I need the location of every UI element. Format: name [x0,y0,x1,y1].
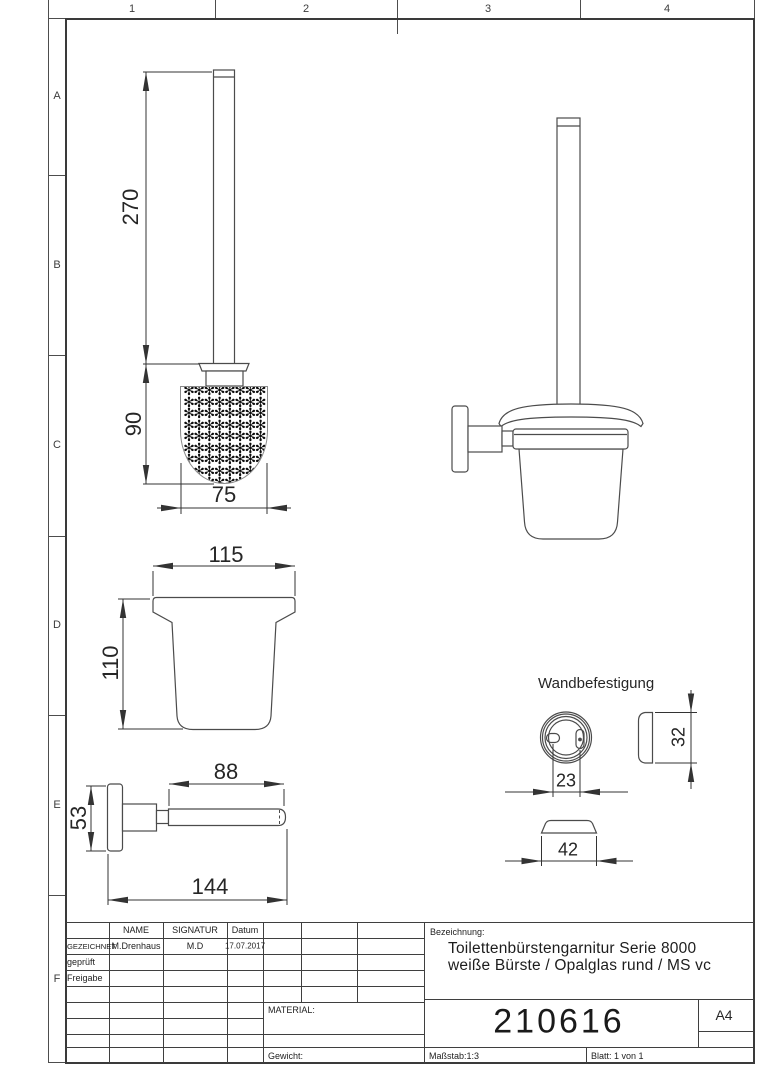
tb-header-signatur: SIGNATUR [172,925,218,935]
tb-gewicht-label: Gewicht: [268,1051,303,1061]
grid-row-a: A [53,90,60,102]
tb-row-geprueft-label: geprüft [67,957,95,967]
assembly-glass-cup [519,449,623,539]
brush-neck [206,371,243,386]
grid-col-1: 1 [129,3,135,15]
grid-col-2: 2 [303,3,309,15]
view-assembly-side [452,118,643,539]
dim-glass-height: 110 [98,645,124,680]
drawing-linework [0,0,764,1080]
grid-row-b: B [53,259,60,271]
holder-wall-plate [108,784,123,851]
tb-gezeichnet-signatur: M.D [187,941,204,951]
tb-gezeichnet-datum: 17.07.2017 [225,942,265,951]
dim-plate-height-side: 53 [66,806,92,830]
grid-col-4: 4 [664,3,670,15]
tb-bezeichnung-label: Bezeichnung: [430,927,485,937]
assembly-arm [468,426,502,452]
view-glass-front [153,598,295,730]
assembly-ring [513,429,628,449]
glass-cup-outline [153,598,295,730]
assembly-wall-plate [452,406,468,472]
arrows-wall-mount [522,694,695,865]
grid-row-f: F [54,973,61,985]
grid-row-d: D [53,619,61,631]
grid-row-c: C [53,439,61,451]
wall-mount-title: Wandbefestigung [538,675,654,692]
frame-grid [49,0,756,1063]
dim-mount-height: 32 [669,727,690,747]
tb-material-label: MATERIAL: [268,1005,315,1015]
tb-gezeichnet-name: M.Drenhaus [111,941,160,951]
holder-rod [169,809,286,826]
dim-handle-height: 270 [118,189,144,226]
assembly-lid [499,404,643,427]
tb-title-line2: weiße Bürste / Opalglas rund / MS vc [448,957,711,975]
inner-frame [66,19,754,1063]
view-holder-side [108,784,286,851]
dim-hole-spacing: 23 [556,771,576,792]
brush-handle [214,70,235,364]
tb-blatt: Blatt: 1 von 1 [591,1051,644,1061]
mount-side-profile [639,713,653,764]
drawing-sheet: ✻✻✻✻✻✻✻✻ ✻✻✻✻✻✻✻✻ ✻✻✻✻✻✻✻✻ ✻✻✻✻✻✻✻✻ ✻✻✻✻… [0,0,764,1080]
tb-part-number: 210616 [493,1003,624,1042]
holder-connector [157,811,169,824]
dim-brush-height: 90 [121,412,147,436]
assembly-connector [502,431,513,446]
bristle-pattern: ✻✻✻✻✻✻✻✻ ✻✻✻✻✻✻✻✻ ✻✻✻✻✻✻✻✻ ✻✻✻✻✻✻✻✻ ✻✻✻✻… [181,386,267,484]
tb-format: A4 [715,1007,732,1023]
dim-rod-length: 88 [214,759,238,785]
holder-arm [123,804,157,831]
tb-row-freigabe-label: Freigabe [67,973,103,983]
dim-brush-width: 75 [212,482,236,508]
grid-col-3: 3 [485,3,491,15]
dim-glass-width: 115 [208,542,243,568]
assembly-handle [557,118,580,405]
dim-total-length: 144 [192,874,229,900]
dims-wall-mount [505,690,697,866]
view-brush-front [199,70,249,386]
tb-header-datum: Datum [232,925,259,935]
tb-header-name: NAME [123,925,149,935]
tb-massstab: Maßstab:1:3 [429,1051,479,1061]
grid-row-e: E [53,799,60,811]
mount-cap-profile [542,821,597,834]
brush-flange [199,364,249,372]
tb-title-line1: Toilettenbürstengarnitur Serie 8000 [448,940,696,958]
dim-cap-width: 42 [558,840,578,861]
tb-row-gezeichnet-label: GEZEICHNET [67,942,116,951]
